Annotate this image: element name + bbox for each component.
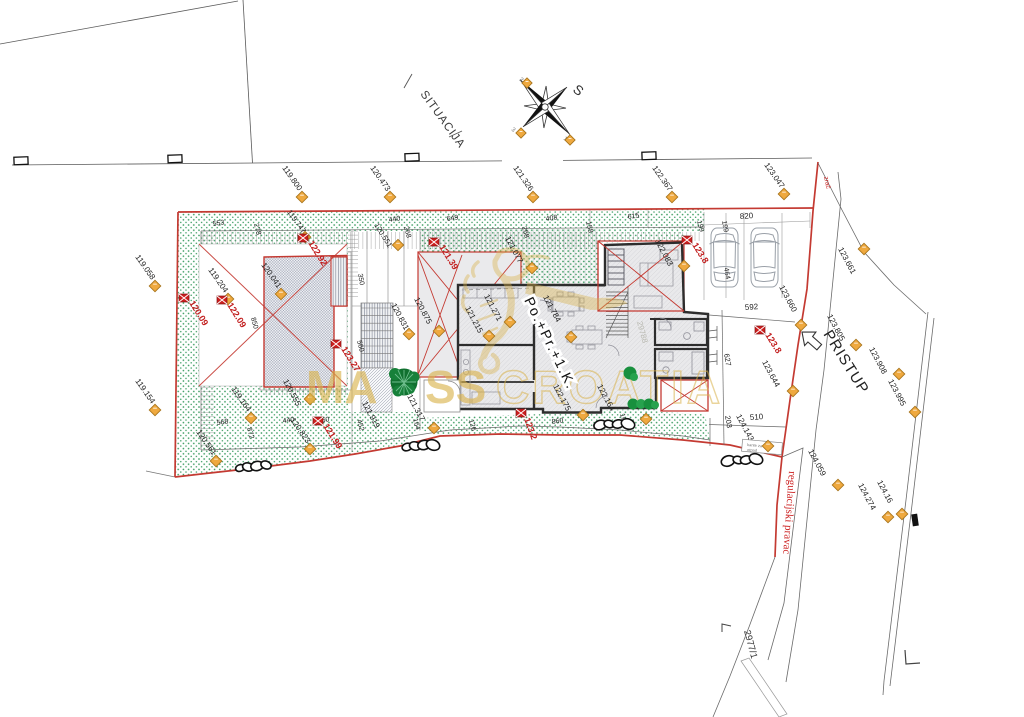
svg-text:510: 510 <box>750 412 764 422</box>
svg-text:otpad: otpad <box>747 447 757 453</box>
svg-text:820: 820 <box>740 211 754 221</box>
svg-text:SS: SS <box>425 361 486 413</box>
svg-text:592: 592 <box>745 302 759 312</box>
